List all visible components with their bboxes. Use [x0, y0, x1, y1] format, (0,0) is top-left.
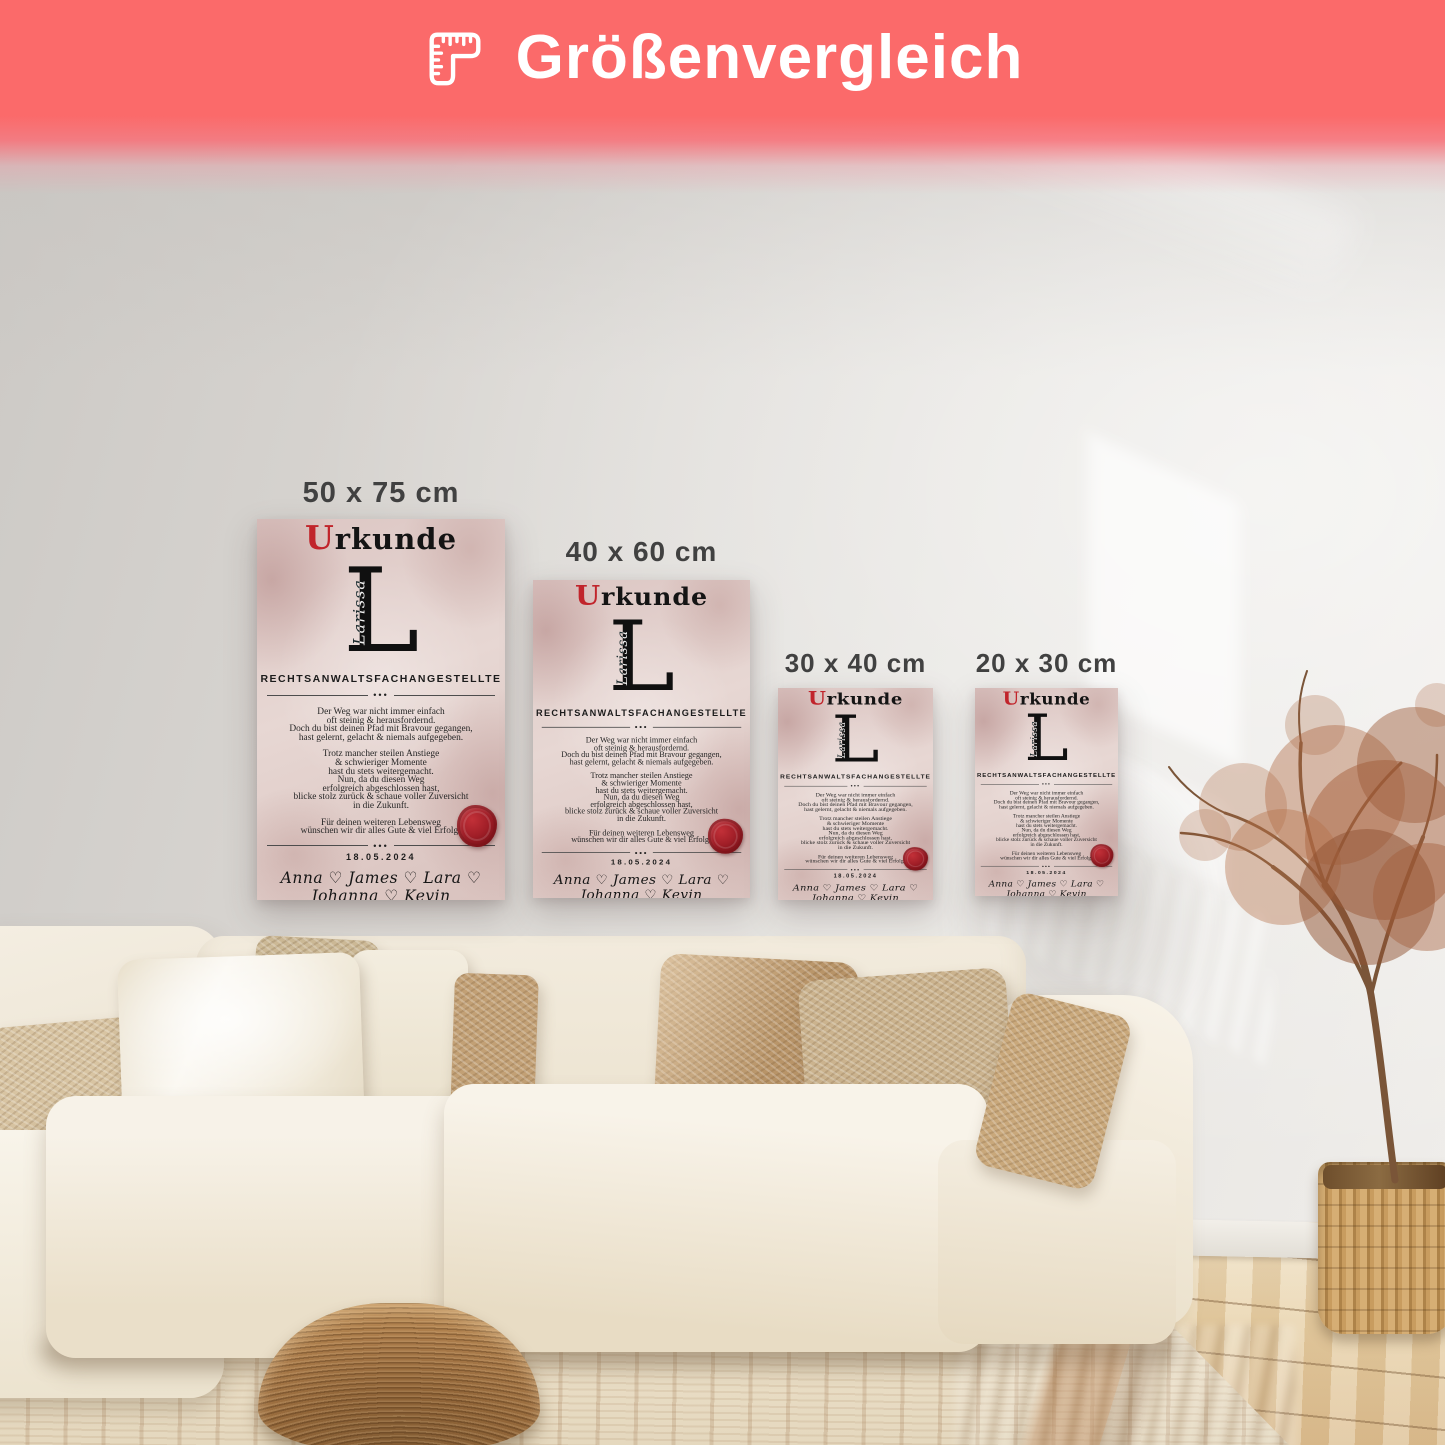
certificate-poster: Urkunde L Larissa RECHTSANWALTSFACHANGES… — [975, 688, 1118, 896]
divider: ••• — [784, 783, 927, 789]
title-initial: U — [575, 580, 601, 612]
size-label: 50 x 75 cm — [303, 477, 460, 510]
certificate-date: 18.05.2024 — [778, 873, 933, 879]
title-initial: U — [305, 519, 335, 557]
certificate: Urkunde L Larissa RECHTSANWALTSFACHANGES… — [257, 519, 505, 900]
page-title: Größenvergleich — [516, 22, 1024, 93]
divider: ••• — [981, 864, 1112, 869]
certificate-poster: Urkunde L Larissa RECHTSANWALTSFACHANGES… — [257, 519, 505, 900]
divider-dots: ••• — [851, 867, 861, 873]
divider-dots: ••• — [635, 723, 649, 731]
divider: ••• — [542, 723, 742, 731]
divider: ••• — [267, 841, 495, 851]
corner-ruler-icon — [422, 25, 488, 91]
monogram-name: Larissa — [350, 579, 369, 645]
size-label: 40 x 60 cm — [566, 536, 718, 568]
certificate: Urkunde L Larissa RECHTSANWALTSFACHANGES… — [778, 688, 933, 900]
certificate-date: 18.05.2024 — [975, 870, 1118, 875]
monogram-letter: L — [975, 708, 1118, 769]
divider: ••• — [542, 849, 742, 857]
certificate-paragraph: Trotz mancher steilen Anstiege & schwier… — [533, 773, 750, 823]
monogram: L Larissa — [257, 556, 505, 668]
size-label: 30 x 40 cm — [785, 648, 927, 679]
certificate-date: 18.05.2024 — [533, 858, 750, 866]
divider: ••• — [981, 781, 1112, 786]
divider-dots: ••• — [1042, 864, 1051, 869]
poster-comparison-layer: 50 x 75 cm Urkunde L Larissa RECHTSANWAL… — [0, 0, 1445, 1445]
poster-group: 50 x 75 cm Urkunde L Larissa RECHTSANWAL… — [257, 519, 505, 900]
monogram: L Larissa — [975, 708, 1118, 769]
monogram-letter: L — [533, 611, 750, 704]
title-initial: U — [1003, 688, 1020, 709]
monogram-letter: L — [778, 709, 933, 771]
certificate-paragraph: Der Weg war nicht immer einfach oft stei… — [975, 791, 1118, 810]
certificate-paragraph: Der Weg war nicht immer einfach oft stei… — [778, 793, 933, 812]
product-mockup-image: 50 x 75 cm Urkunde L Larissa RECHTSANWAL… — [0, 0, 1445, 1445]
divider: ••• — [784, 867, 927, 873]
certificate-paragraph: Trotz mancher steilen Anstiege & schwier… — [778, 817, 933, 850]
divider-dots: ••• — [635, 849, 649, 857]
divider: ••• — [267, 690, 495, 700]
certificate-paragraph: Trotz mancher steilen Anstiege & schwier… — [257, 750, 505, 810]
certificate-date: 18.05.2024 — [257, 852, 505, 862]
monogram-name: Larissa — [836, 721, 848, 758]
monogram: L Larissa — [533, 611, 750, 704]
poster-group: 40 x 60 cm Urkunde L Larissa RECHTSANWAL… — [533, 580, 750, 898]
monogram: L Larissa — [778, 709, 933, 771]
monogram-letter: L — [257, 556, 505, 668]
certificate-names: Anna ♡ James ♡ Lara ♡ Johanna ♡ Kevin — [975, 879, 1118, 896]
certificate-names: Anna ♡ James ♡ Lara ♡ Johanna ♡ Kevin — [533, 872, 750, 898]
divider-dots: ••• — [373, 690, 388, 700]
certificate: Urkunde L Larissa RECHTSANWALTSFACHANGES… — [975, 688, 1118, 896]
certificate-paragraph: Der Weg war nicht immer einfach oft stei… — [533, 738, 750, 767]
monogram-name: Larissa — [1028, 721, 1039, 757]
certificate-names: Anna ♡ James ♡ Lara ♡ Johanna ♡ Kevin — [257, 869, 505, 900]
header-banner: Größenvergleich — [0, 0, 1445, 196]
certificate-names: Anna ♡ James ♡ Lara ♡ Johanna ♡ Kevin — [778, 883, 933, 900]
certificate-paragraph: Der Weg war nicht immer einfach oft stei… — [257, 708, 505, 742]
poster-group: 30 x 40 cm Urkunde L Larissa RECHTSANWAL… — [778, 688, 933, 900]
size-label: 20 x 30 cm — [976, 648, 1118, 679]
certificate-poster: Urkunde L Larissa RECHTSANWALTSFACHANGES… — [778, 688, 933, 900]
title-initial: U — [808, 688, 827, 709]
certificate-poster: Urkunde L Larissa RECHTSANWALTSFACHANGES… — [533, 580, 750, 898]
divider-dots: ••• — [1042, 781, 1051, 786]
divider-dots: ••• — [851, 783, 861, 789]
certificate-paragraph: Trotz mancher steilen Anstiege & schwier… — [975, 814, 1118, 847]
certificate: Urkunde L Larissa RECHTSANWALTSFACHANGES… — [533, 580, 750, 898]
monogram-name: Larissa — [614, 630, 631, 685]
divider-dots: ••• — [373, 841, 388, 851]
poster-group: 20 x 30 cm Urkunde L Larissa RECHTSANWAL… — [975, 688, 1118, 896]
